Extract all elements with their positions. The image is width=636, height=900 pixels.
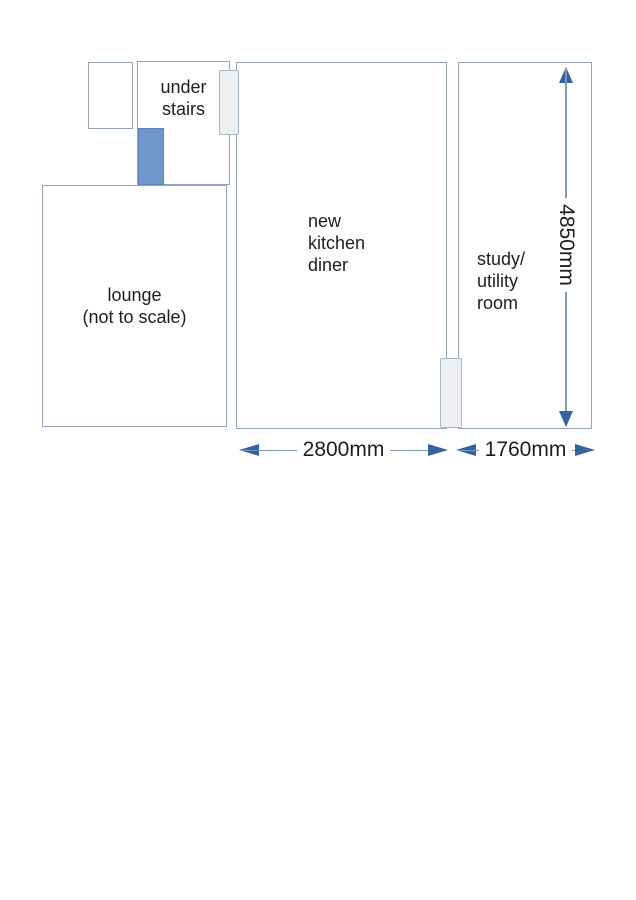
room-label-line: diner [308, 254, 365, 276]
floor-plan-canvas: under stairs lounge (not to scale) new k… [0, 0, 636, 900]
room-label-line: stairs [138, 98, 229, 120]
dimension-arrow-kitchen-width: 2800mm [239, 444, 448, 457]
arrowhead-down-icon [559, 411, 573, 427]
room-lounge: lounge (not to scale) [42, 185, 227, 427]
room-label-line: (not to scale) [82, 306, 186, 328]
room-label-study-utility: study/ utility room [477, 248, 525, 314]
room-label-line: lounge [82, 284, 186, 306]
dimension-arrow-height: 4850mm [559, 67, 573, 427]
arrowhead-right-icon [428, 444, 448, 456]
room-label-line: utility [477, 270, 525, 292]
room-small-closet [88, 62, 133, 129]
dimension-label-study-width: 1760mm [479, 438, 573, 462]
room-label-lounge: lounge (not to scale) [82, 284, 186, 328]
room-label-line: under [138, 76, 229, 98]
door-under-stairs [219, 70, 239, 135]
room-label-line: study/ [477, 248, 525, 270]
stairs-block [138, 128, 164, 185]
arrowhead-right-icon [575, 444, 595, 456]
dimension-arrow-study-width: 1760mm [456, 444, 595, 457]
room-label-line: room [477, 292, 525, 314]
room-label-line: new [308, 210, 365, 232]
room-label-under-stairs: under stairs [138, 62, 229, 120]
room-label-line: kitchen [308, 232, 365, 254]
room-label-kitchen-diner: new kitchen diner [308, 210, 365, 276]
door-kitchen-study [440, 358, 462, 428]
dimension-label-kitchen-width: 2800mm [297, 438, 391, 462]
room-kitchen-diner: new kitchen diner [236, 62, 447, 429]
dimension-label-height: 4850mm [555, 198, 577, 292]
